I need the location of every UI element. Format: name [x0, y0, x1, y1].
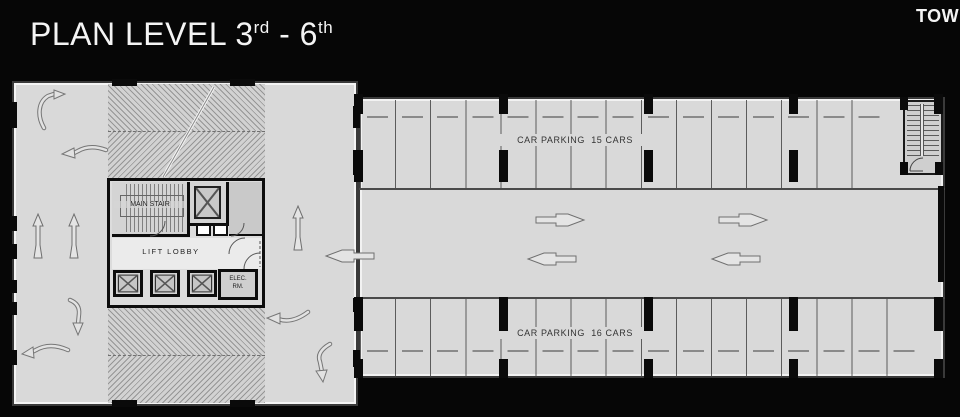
ramp-hatch-bottom-lower — [108, 355, 265, 403]
column — [644, 359, 653, 378]
window-tick — [230, 79, 255, 86]
column — [499, 150, 508, 182]
window-tick — [353, 350, 360, 367]
stair-corner-block — [935, 162, 943, 175]
wheel-stops-top — [360, 116, 886, 118]
column — [644, 150, 653, 182]
window-tick — [10, 216, 17, 231]
service-core: MAIN STAIR LIFT LOBBY ELEC.RM. — [107, 178, 265, 308]
window-tick — [112, 400, 137, 407]
column — [644, 94, 653, 114]
window-tick — [353, 298, 360, 312]
window-tick — [112, 79, 137, 86]
column — [789, 150, 798, 182]
title-superscript-rd: rd — [254, 18, 270, 37]
window-tick — [230, 400, 255, 407]
wall-segment — [938, 186, 944, 282]
window-tick — [353, 106, 360, 128]
floor-plan-canvas: PLAN LEVEL 3rd - 6th TOW MAIN STAIR LIFT… — [0, 0, 960, 417]
column — [934, 297, 943, 331]
core-door-swings — [110, 181, 262, 305]
stair-divider — [920, 104, 924, 156]
window-tick — [10, 280, 17, 293]
window-tick — [10, 350, 17, 365]
car-parking-top-label: CAR PARKING 15 CARS — [480, 134, 670, 146]
window-tick — [10, 102, 17, 128]
column — [499, 94, 508, 114]
column — [789, 94, 798, 114]
title-superscript-th: th — [318, 18, 333, 37]
stair-corner-block — [900, 162, 908, 175]
stall-front-line-top — [359, 188, 945, 190]
wheel-stops-bottom — [360, 350, 921, 352]
ramp-centerline-top — [108, 131, 265, 132]
car-parking-bottom-label: CAR PARKING 16 CARS — [480, 327, 670, 339]
column — [934, 359, 943, 378]
column — [789, 297, 798, 331]
ramp-hatch-top-upper — [108, 84, 265, 131]
title-range: - 6 — [270, 16, 318, 52]
column — [499, 359, 508, 378]
corner-logo-text: TOW — [916, 6, 959, 27]
column — [789, 359, 798, 378]
window-tick — [353, 150, 360, 175]
stair-corner-block — [900, 97, 908, 110]
stair-corner-block — [935, 97, 943, 110]
window-tick — [10, 302, 17, 315]
column — [499, 297, 508, 331]
ramp-centerline-bottom — [108, 355, 265, 356]
page-title: PLAN LEVEL 3rd - 6th — [30, 16, 333, 53]
ramp-hatch-top-lower — [108, 131, 265, 178]
column — [644, 297, 653, 331]
ramp-hatch-bottom-upper — [108, 308, 265, 355]
title-main: PLAN LEVEL 3 — [30, 16, 254, 52]
window-tick — [10, 244, 17, 259]
